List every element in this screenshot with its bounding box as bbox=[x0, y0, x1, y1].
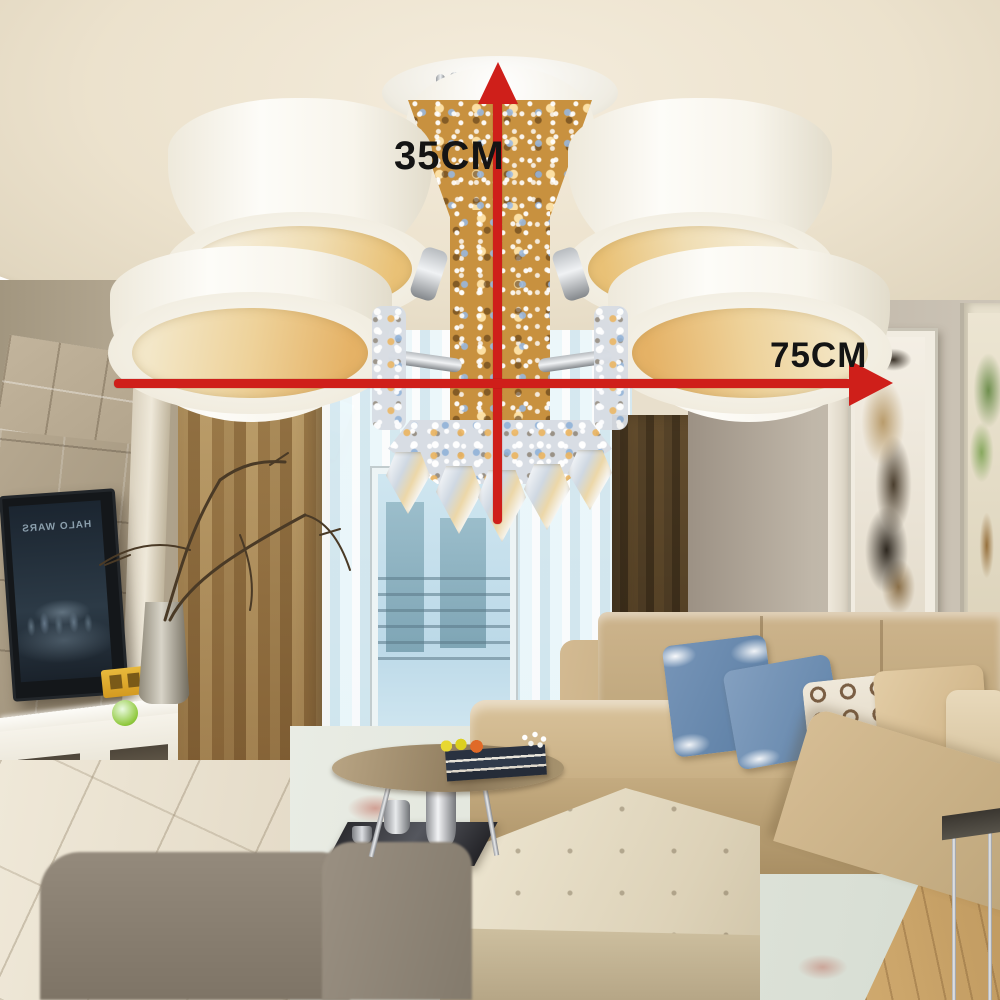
foreground-gray-sofa bbox=[40, 852, 350, 1000]
foreground-gray-sofa-cushion bbox=[322, 842, 472, 1000]
fruit-decor bbox=[436, 736, 488, 756]
balcony-railing bbox=[378, 570, 510, 660]
side-table-leg bbox=[952, 834, 956, 1000]
botanical-painting bbox=[968, 313, 1000, 623]
side-table-leg bbox=[988, 830, 992, 1000]
tufted-bench-front bbox=[440, 928, 760, 1000]
dry-branches bbox=[70, 420, 370, 640]
crystal-strand-left bbox=[372, 306, 406, 430]
height-dimension-label: 35CM bbox=[394, 134, 505, 179]
botanical-artwork bbox=[960, 303, 1000, 638]
silver-teapot bbox=[384, 800, 410, 834]
small-white-flowers bbox=[518, 730, 552, 760]
crystal-strand-right bbox=[594, 306, 628, 430]
width-dimension-line bbox=[114, 379, 852, 388]
green-alarm-clock bbox=[112, 700, 138, 726]
living-room-product-photo: HALO WARS bbox=[0, 0, 1000, 1000]
width-dimension-label: 75CM bbox=[770, 336, 867, 376]
